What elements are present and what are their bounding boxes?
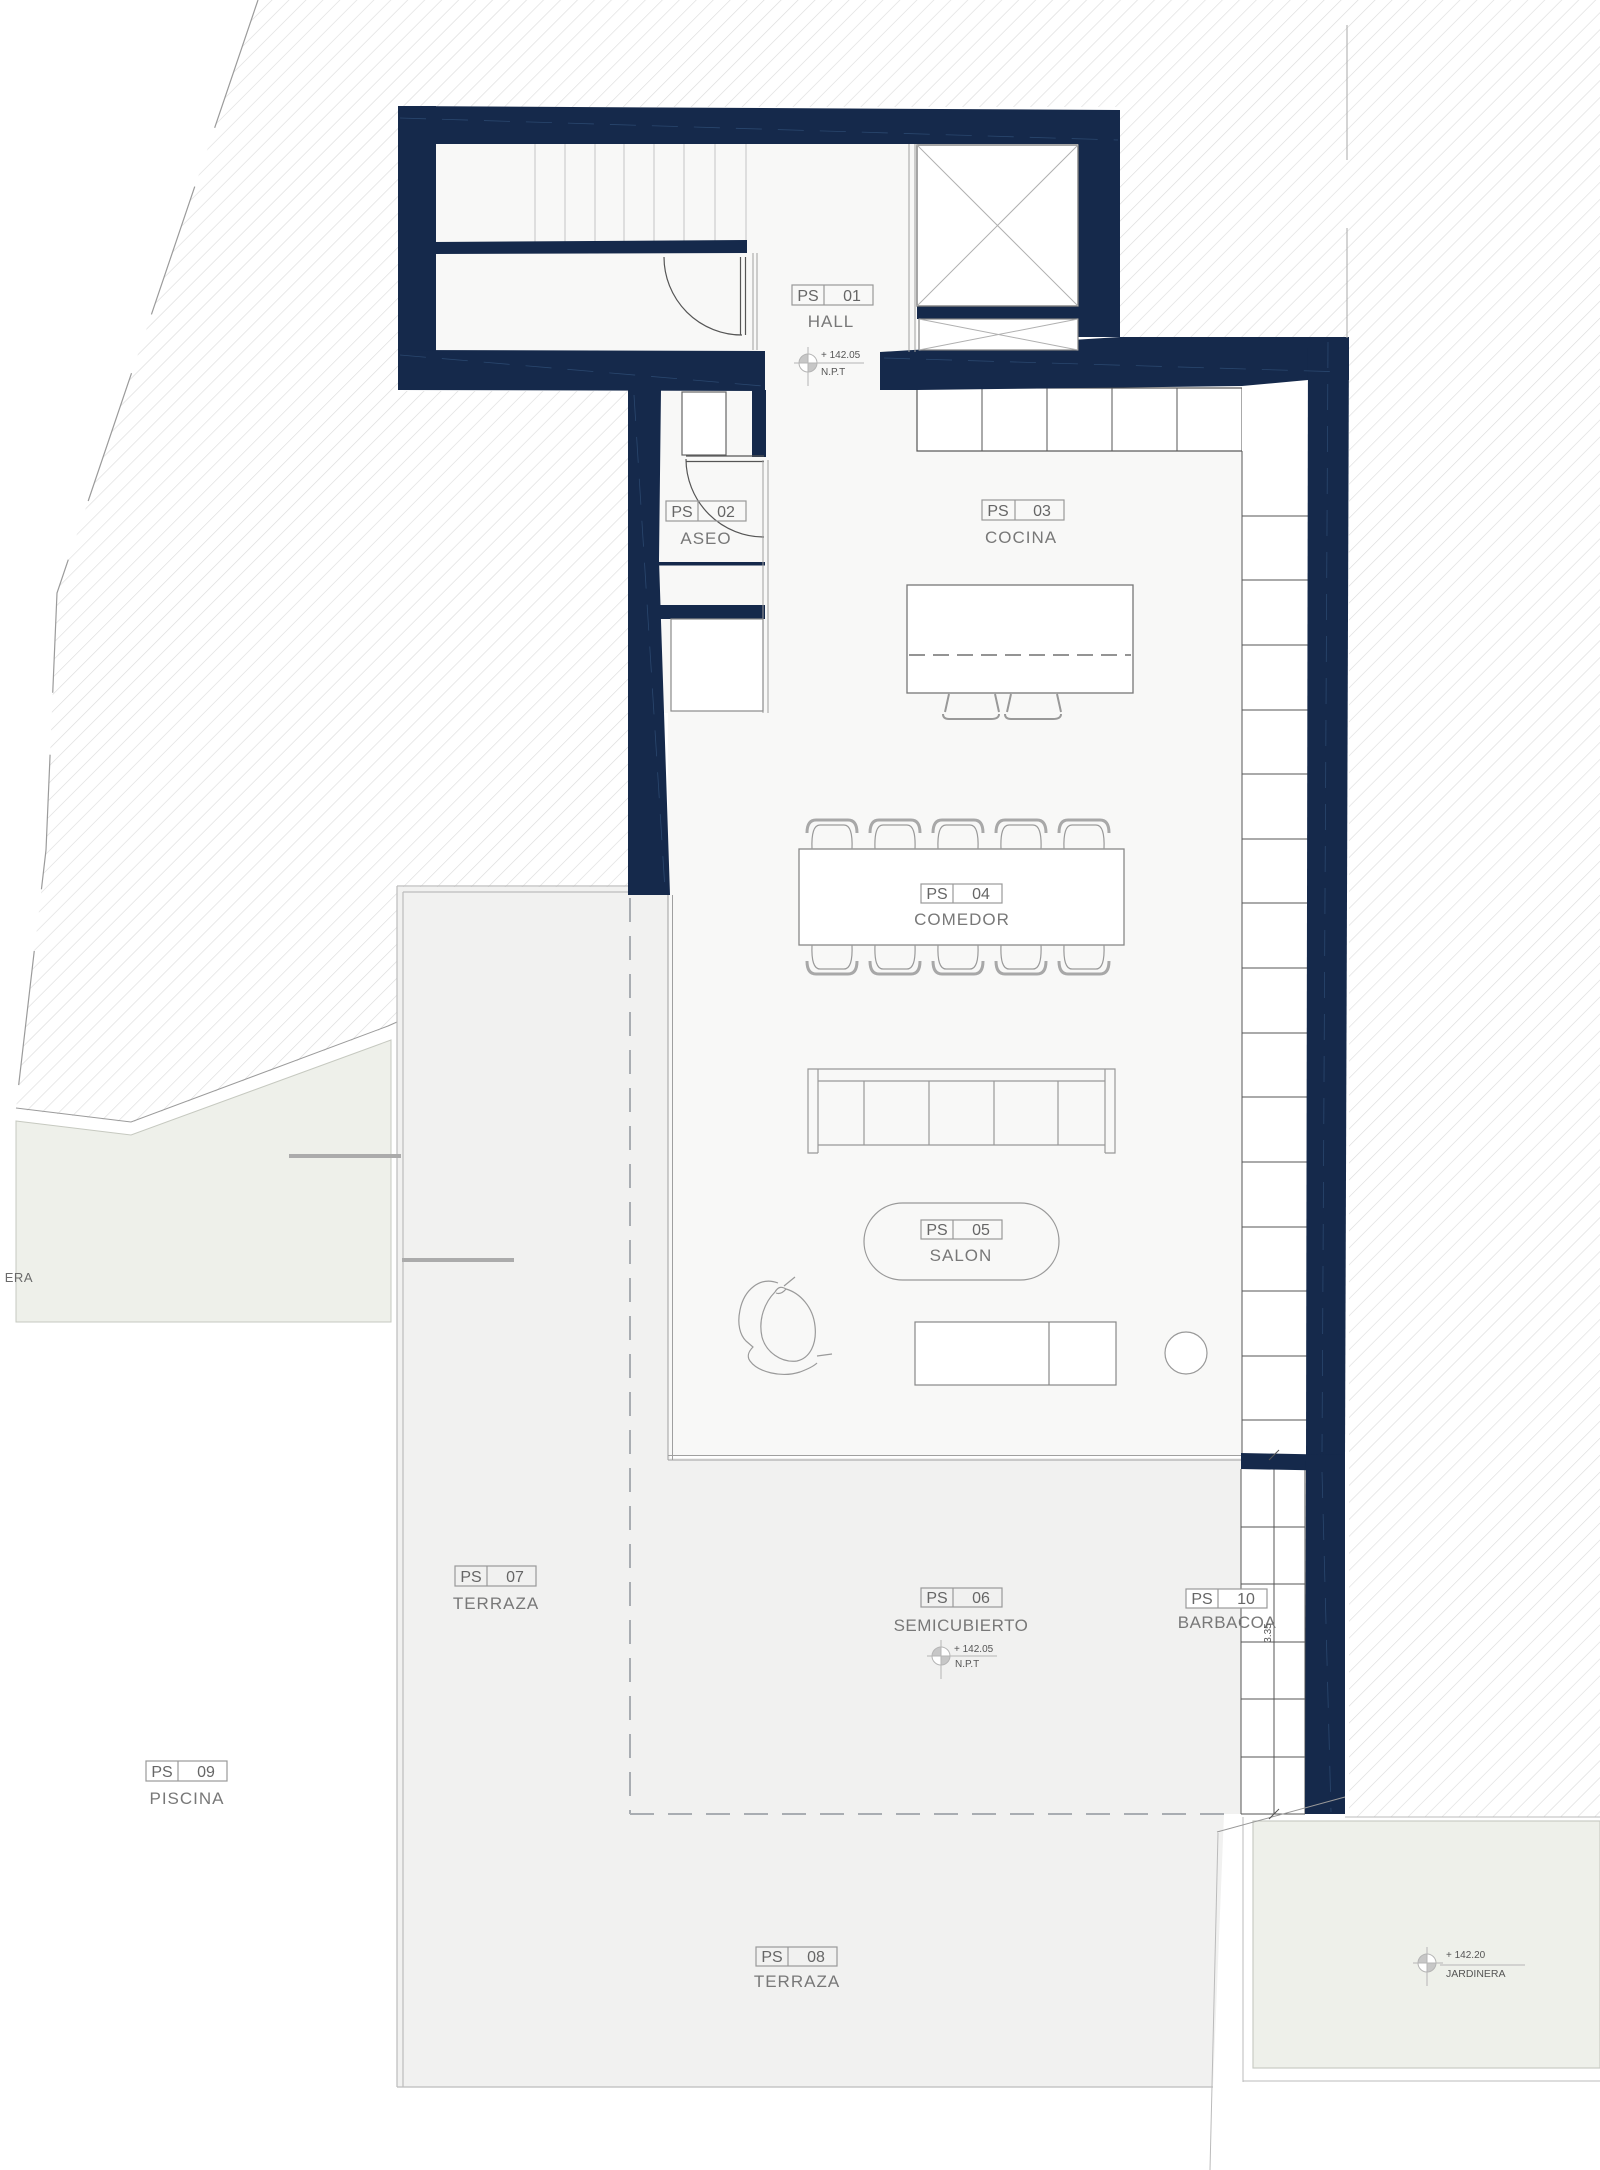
svg-text:ASEO: ASEO <box>680 529 731 548</box>
svg-text:PS: PS <box>797 288 818 305</box>
svg-text:+ 142.05: + 142.05 <box>954 1644 994 1655</box>
svg-text:JARDINERA: JARDINERA <box>1446 1968 1506 1980</box>
svg-text:TERRAZA: TERRAZA <box>453 1594 539 1613</box>
svg-text:BARBACOA: BARBACOA <box>1178 1613 1277 1632</box>
svg-text:PS: PS <box>671 504 692 521</box>
svg-text:COMEDOR: COMEDOR <box>914 910 1010 929</box>
svg-text:N.P.T: N.P.T <box>821 367 845 378</box>
svg-text:09: 09 <box>197 1764 215 1781</box>
svg-text:PS: PS <box>926 1590 947 1607</box>
svg-text:04: 04 <box>972 886 990 903</box>
svg-text:07: 07 <box>506 1569 524 1586</box>
svg-text:TERRAZA: TERRAZA <box>754 1972 840 1991</box>
svg-text:ERA: ERA <box>5 1270 33 1285</box>
svg-text:COCINA: COCINA <box>985 528 1057 547</box>
svg-text:PS: PS <box>1191 1591 1212 1608</box>
svg-text:10: 10 <box>1237 1591 1255 1608</box>
svg-text:PISCINA: PISCINA <box>149 1789 224 1808</box>
svg-text:PS: PS <box>151 1764 172 1781</box>
svg-text:03: 03 <box>1033 503 1051 520</box>
svg-text:01: 01 <box>843 288 861 305</box>
svg-text:05: 05 <box>972 1222 990 1239</box>
svg-text:02: 02 <box>717 504 735 521</box>
svg-text:+ 142.05: + 142.05 <box>821 350 861 361</box>
svg-text:SEMICUBIERTO: SEMICUBIERTO <box>894 1616 1029 1635</box>
svg-text:+ 142.20: + 142.20 <box>1446 1950 1486 1961</box>
svg-text:SALON: SALON <box>930 1246 993 1265</box>
svg-text:PS: PS <box>761 1949 782 1966</box>
svg-text:06: 06 <box>972 1590 990 1607</box>
svg-text:HALL: HALL <box>808 312 855 331</box>
svg-text:PS: PS <box>460 1569 481 1586</box>
svg-text:N.P.T: N.P.T <box>955 1659 979 1670</box>
svg-text:PS: PS <box>926 886 947 903</box>
svg-text:08: 08 <box>807 1949 825 1966</box>
svg-text:PS: PS <box>987 503 1008 520</box>
svg-text:3.35: 3.35 <box>1263 1623 1274 1643</box>
svg-text:PS: PS <box>926 1222 947 1239</box>
